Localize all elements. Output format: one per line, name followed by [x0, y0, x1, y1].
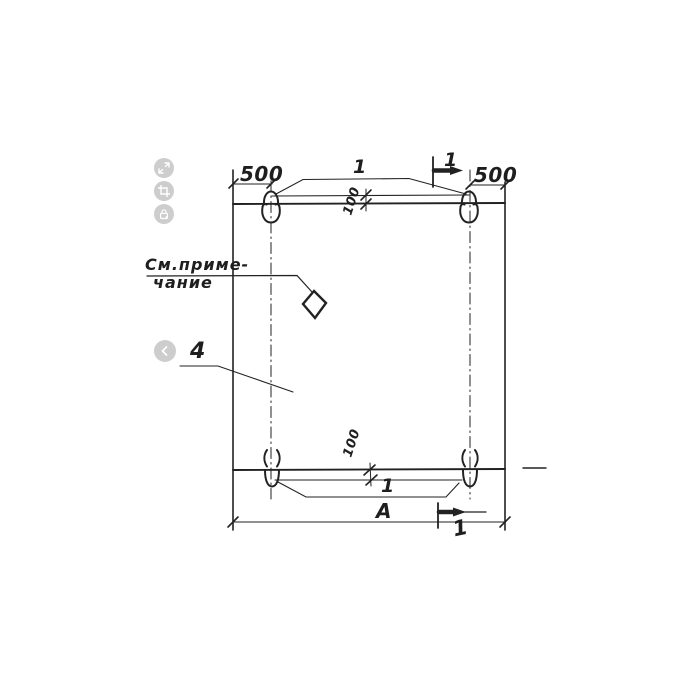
lifting-loop-bottom-left: [264, 450, 279, 487]
centerlines: [271, 170, 470, 499]
part-leader: [180, 366, 293, 392]
drawing-canvas: 500 500 1 1 100 100 См.приме- чание 4 1 …: [0, 0, 700, 700]
callout-label-bottom: 1: [381, 477, 395, 496]
lock-icon[interactable]: [154, 204, 174, 224]
callout-leader-bottom: [278, 482, 459, 497]
section-label-top: 1: [444, 151, 458, 170]
dim-label-500-left: 500: [240, 164, 283, 184]
crop-icon[interactable]: [154, 181, 174, 201]
callout-label-top: 1: [353, 158, 367, 177]
part-number-label: 4: [190, 341, 206, 363]
dim-label-A: А: [376, 501, 392, 521]
dimension-100-bottom: [364, 463, 377, 486]
note-text-line2: чание: [153, 275, 213, 291]
loop-top-line: [272, 195, 469, 196]
dim-label-500-right: 500: [474, 165, 517, 185]
lifting-loop-top-right: [460, 192, 478, 223]
previous-icon[interactable]: [154, 340, 176, 362]
marking-diamond: [303, 291, 326, 318]
expand-icon[interactable]: [154, 158, 174, 178]
note-text-line1: См.приме-: [145, 257, 249, 273]
technical-drawing-lines: [0, 0, 700, 700]
callout-leader-top: [276, 179, 466, 195]
